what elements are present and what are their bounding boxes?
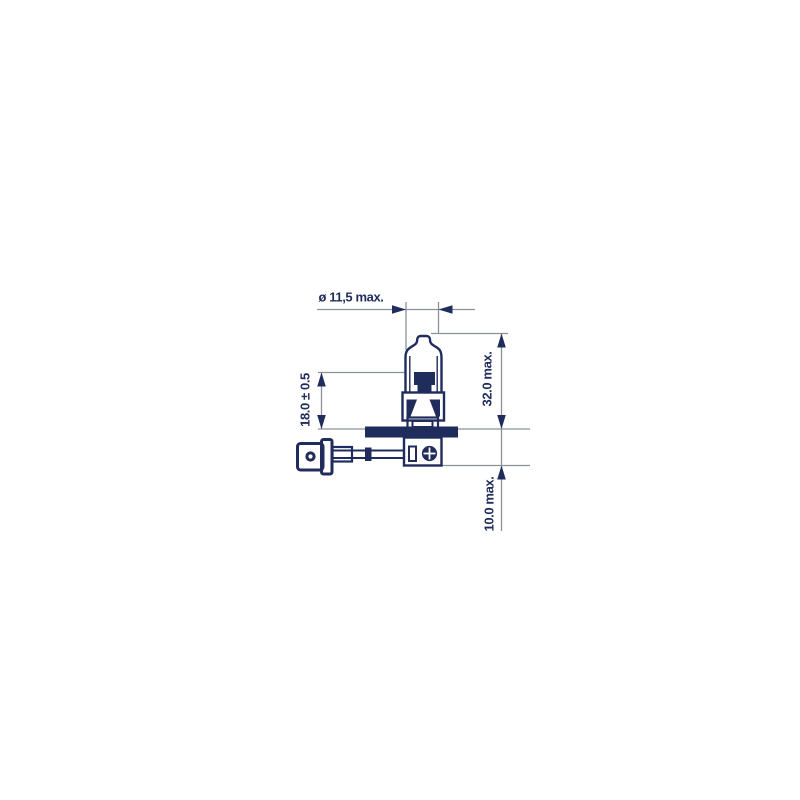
filament-shield: [414, 372, 435, 393]
connector-hole: [307, 453, 314, 460]
contact-strip-left: [407, 400, 418, 417]
base-slot: [409, 447, 416, 462]
spade-connector: [298, 440, 333, 475]
arrow-up-icon: [497, 334, 506, 348]
base-lower-section: [404, 438, 442, 466]
contact-strip-right: [430, 400, 441, 417]
arrow-left-icon: [439, 305, 453, 314]
base-screw-icon: [422, 446, 437, 461]
dim-label-bulb-diameter: ø 11,5 max.: [319, 289, 384, 304]
bulb-technical-drawing: ø 11,5 max. 18.0 ± 0.5 32.0 max. 10.0 ma…: [0, 0, 800, 800]
arrow-down-icon: [317, 415, 326, 429]
wire-crimp-sleeve: [333, 447, 353, 462]
arrow-down-icon: [497, 415, 506, 429]
bulb-glass: [406, 336, 442, 393]
arrow-up-icon: [497, 466, 506, 480]
lead-wire: [331, 447, 405, 462]
drawing-linework: [0, 0, 800, 800]
flange-plate: [365, 427, 458, 438]
flange-boss-window: [413, 421, 433, 427]
dim-label-base-depth: 10.0 max.: [482, 477, 497, 532]
wire-band: [365, 448, 372, 462]
base-upper-section: [403, 393, 445, 421]
dim-label-light-center-length: 18.0 ± 0.5: [298, 373, 313, 427]
arrow-right-icon: [392, 305, 406, 314]
arrow-up-icon: [317, 373, 326, 387]
connector-body: [298, 444, 324, 471]
dim-label-overall-length: 32.0 max.: [480, 352, 495, 407]
